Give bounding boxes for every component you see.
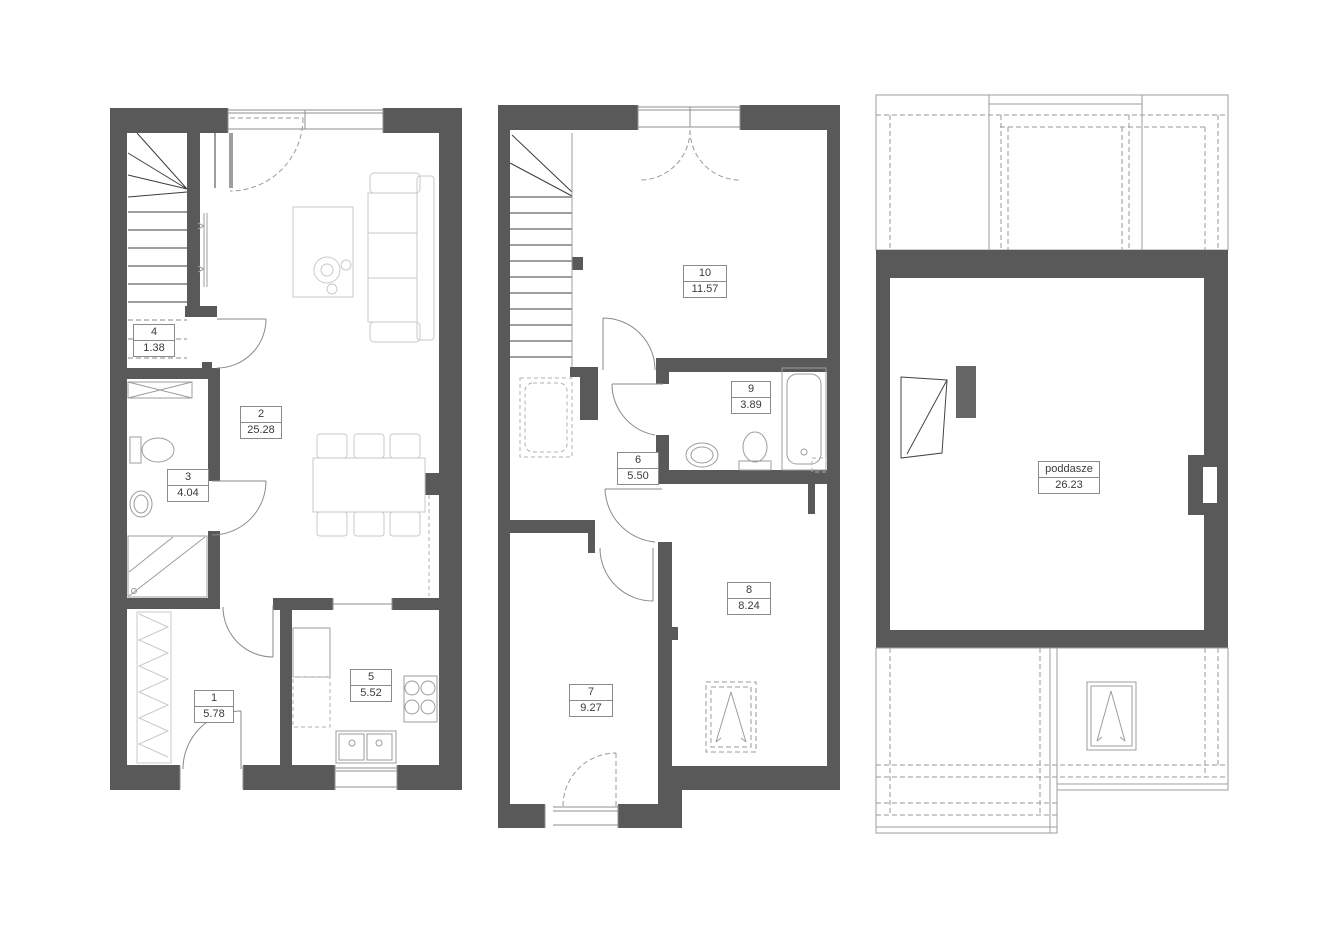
sofa [368, 173, 434, 342]
room-number: 2 [241, 407, 281, 423]
room-area: 25.28 [241, 423, 281, 438]
room-label-5: 5 5.52 [350, 669, 392, 702]
room-number: 3 [168, 470, 208, 486]
ground-kitchen [293, 495, 437, 763]
counter-outline [293, 677, 330, 727]
room-number: 4 [134, 325, 174, 341]
room-number: 7 [570, 685, 612, 701]
roof-plan-top [876, 95, 1228, 250]
room-label-1: 1 5.78 [194, 690, 234, 723]
room-number: 9 [732, 382, 770, 398]
coffee-table [293, 207, 353, 297]
room-number: 8 [728, 583, 770, 599]
first-floor-plan [498, 105, 840, 828]
floor-hatch [901, 377, 947, 458]
ground-floor-plan [110, 108, 462, 790]
room-label-8: 8 8.24 [727, 582, 771, 615]
floor-plans-canvas: 1 5.78 2 25.28 3 4.04 4 1.38 5 5.52 6 5.… [0, 0, 1337, 945]
room-label-4: 4 1.38 [133, 324, 175, 357]
room-label-6: 6 5.50 [617, 452, 659, 485]
room-label-poddasze: poddasze 26.23 [1038, 461, 1100, 494]
fridge-icon [293, 628, 330, 677]
room-number: 5 [351, 670, 391, 686]
room-label-9: 9 3.89 [731, 381, 771, 414]
roof-plan-bottom [876, 648, 1228, 833]
kitchen-sink-icon [336, 731, 396, 763]
roof-window-room8 [706, 682, 756, 752]
first-stairs [510, 133, 572, 457]
toilet-icon [130, 437, 174, 463]
room-label-3: 3 4.04 [167, 469, 209, 502]
room-area: 5.78 [195, 707, 233, 722]
stove-icon [404, 676, 437, 722]
wardrobe [137, 612, 171, 763]
shower-icon [128, 536, 207, 597]
room-area: 26.23 [1039, 478, 1099, 493]
room-area: 1.38 [134, 341, 174, 356]
room-number: 6 [618, 453, 658, 469]
room-area: 11.57 [684, 282, 726, 297]
bathtub-icon [782, 368, 826, 472]
tub-dashed-outline [520, 378, 572, 457]
tub-dashed-inner [525, 383, 567, 452]
room-area: 8.24 [728, 599, 770, 614]
toilet-icon [739, 432, 771, 470]
wall-niche [1203, 467, 1217, 503]
washer-icon [128, 382, 192, 398]
room-area: 4.04 [168, 486, 208, 501]
chimney [956, 366, 976, 418]
room-number: 10 [684, 266, 726, 282]
room-area: 3.89 [732, 398, 770, 413]
room-label-7: 7 9.27 [569, 684, 613, 717]
sink-icon [686, 443, 718, 467]
room-area: 5.50 [618, 469, 658, 484]
sink-icon [130, 491, 152, 517]
room-area: 9.27 [570, 701, 612, 716]
attic-interior [901, 366, 976, 458]
skylight-icon [1087, 682, 1136, 750]
room-label-2: 2 25.28 [240, 406, 282, 439]
room-area: 5.52 [351, 686, 391, 701]
ground-walls [110, 108, 462, 790]
room-label-10: 10 11.57 [683, 265, 727, 298]
room-number: poddasze [1039, 462, 1099, 478]
room-number: 1 [195, 691, 233, 707]
dining-table [313, 434, 425, 536]
